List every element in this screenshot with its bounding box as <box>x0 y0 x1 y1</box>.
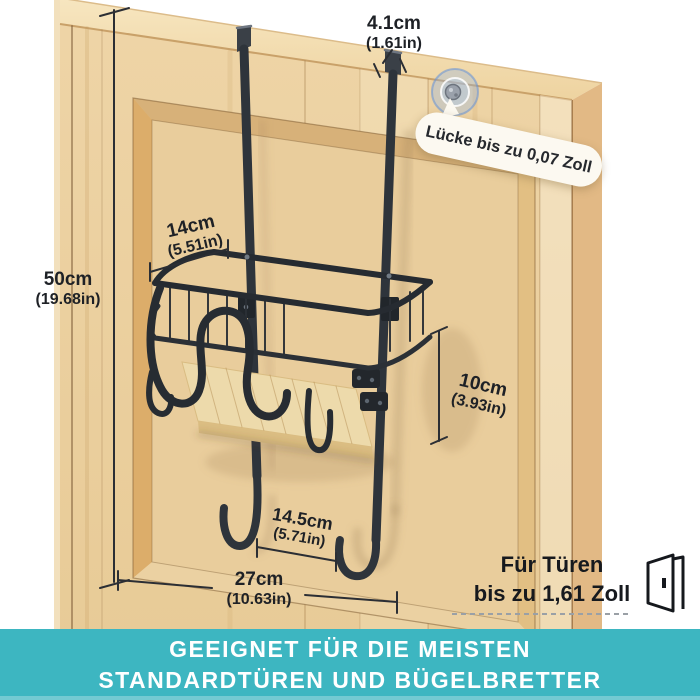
banner-line-2: STANDARDTÜREN UND BÜGELBRETTER <box>98 666 601 695</box>
banner: GEEIGNET FÜR DIE MEISTEN STANDARDTÜREN U… <box>0 629 700 700</box>
door-thickness-note: Für Türen bis zu 1,61 Zoll <box>462 551 642 608</box>
dim-inches: (1.61in) <box>366 35 422 53</box>
dim-inches: (10.63in) <box>227 591 292 609</box>
dim-label-rack-height: 50cm (19.68in) <box>36 270 101 308</box>
door-left-edge <box>54 0 60 640</box>
dim-label-rack-width: 27cm (10.63in) <box>227 570 292 608</box>
dim-label-strap-depth: 4.1cm (1.61in) <box>366 14 422 52</box>
dim-value: 27cm <box>227 570 292 591</box>
door-note-line2: bis zu 1,61 Zoll <box>462 580 642 609</box>
dim-inches: (19.68in) <box>36 291 101 309</box>
open-door-icon <box>640 552 688 614</box>
product-diagram: 4.1cm (1.61in) 50cm (19.68in) 14cm (5.51… <box>0 0 700 700</box>
dim-value: 4.1cm <box>366 14 422 35</box>
dim-value: 50cm <box>36 270 101 291</box>
mount-plate-lower <box>360 392 388 411</box>
banner-line-1: GEEIGNET FÜR DIE MEISTEN <box>169 635 531 664</box>
door-note-line1: Für Türen <box>462 551 642 580</box>
dashed-divider <box>452 613 630 615</box>
mount-plate-upper <box>352 369 380 388</box>
